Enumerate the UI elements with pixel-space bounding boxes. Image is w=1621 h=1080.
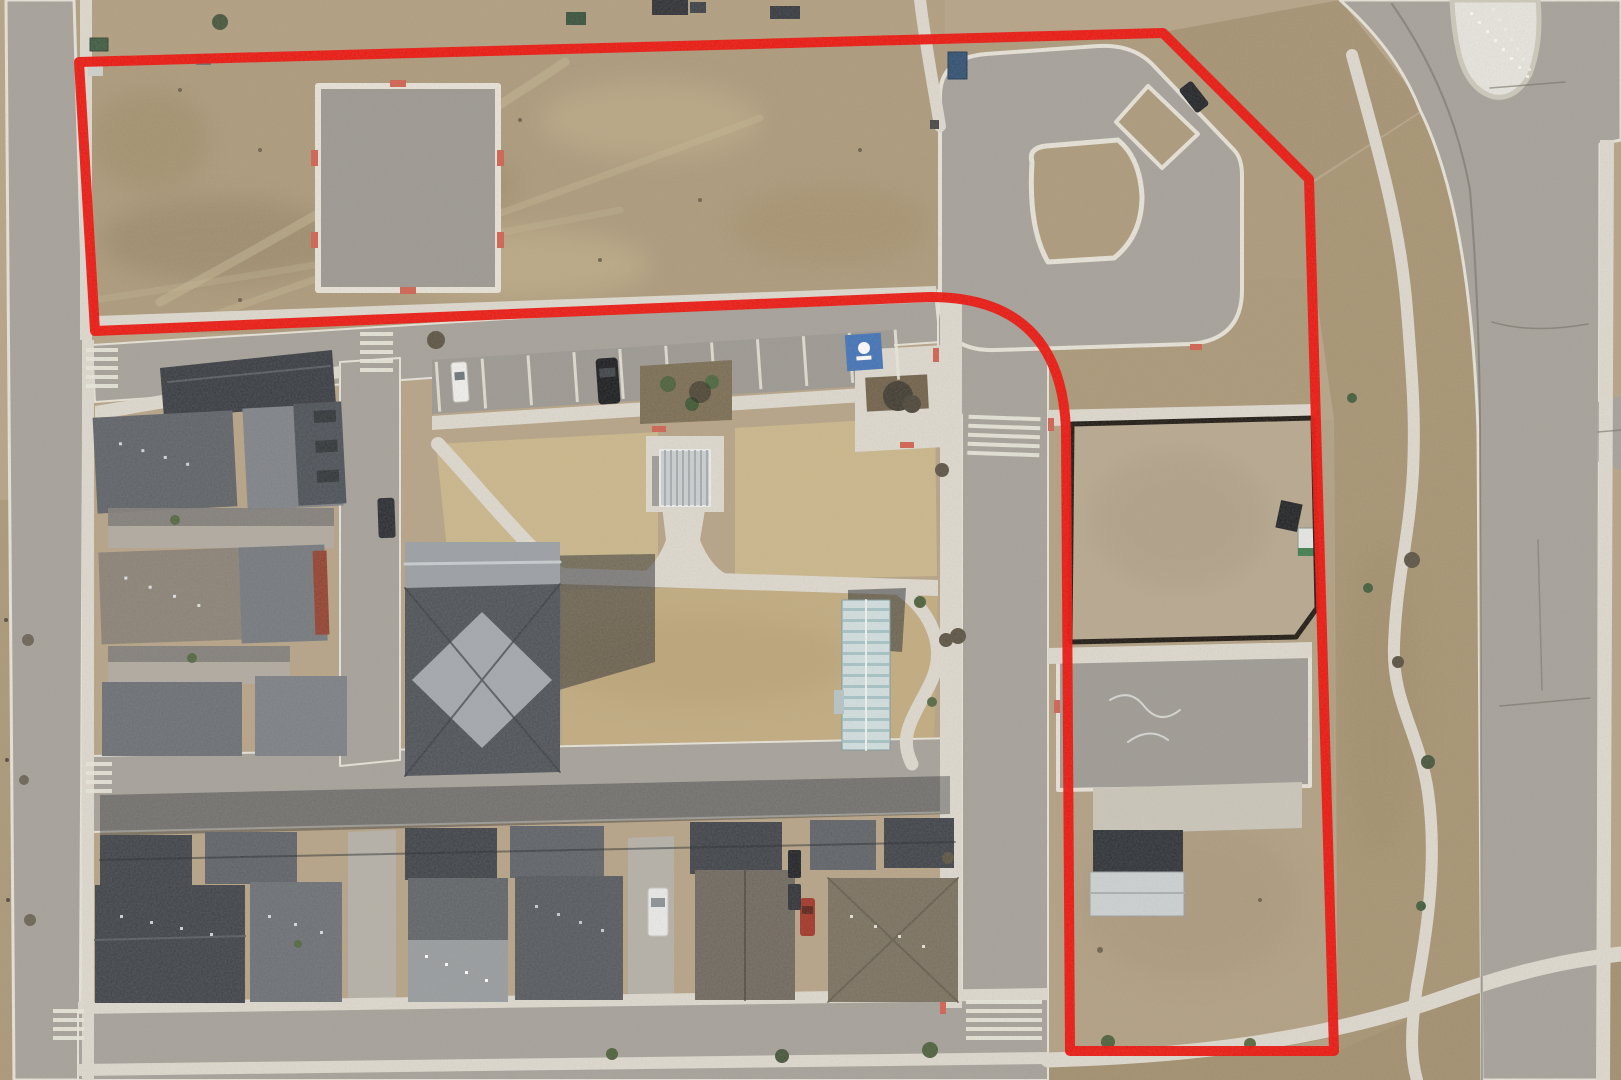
screenshot-root [0, 0, 1621, 1080]
aerial-photo [0, 0, 1621, 1080]
photo-grain [0, 0, 1621, 1080]
layer-overlay [0, 0, 1621, 1080]
render-root [0, 0, 1621, 1080]
